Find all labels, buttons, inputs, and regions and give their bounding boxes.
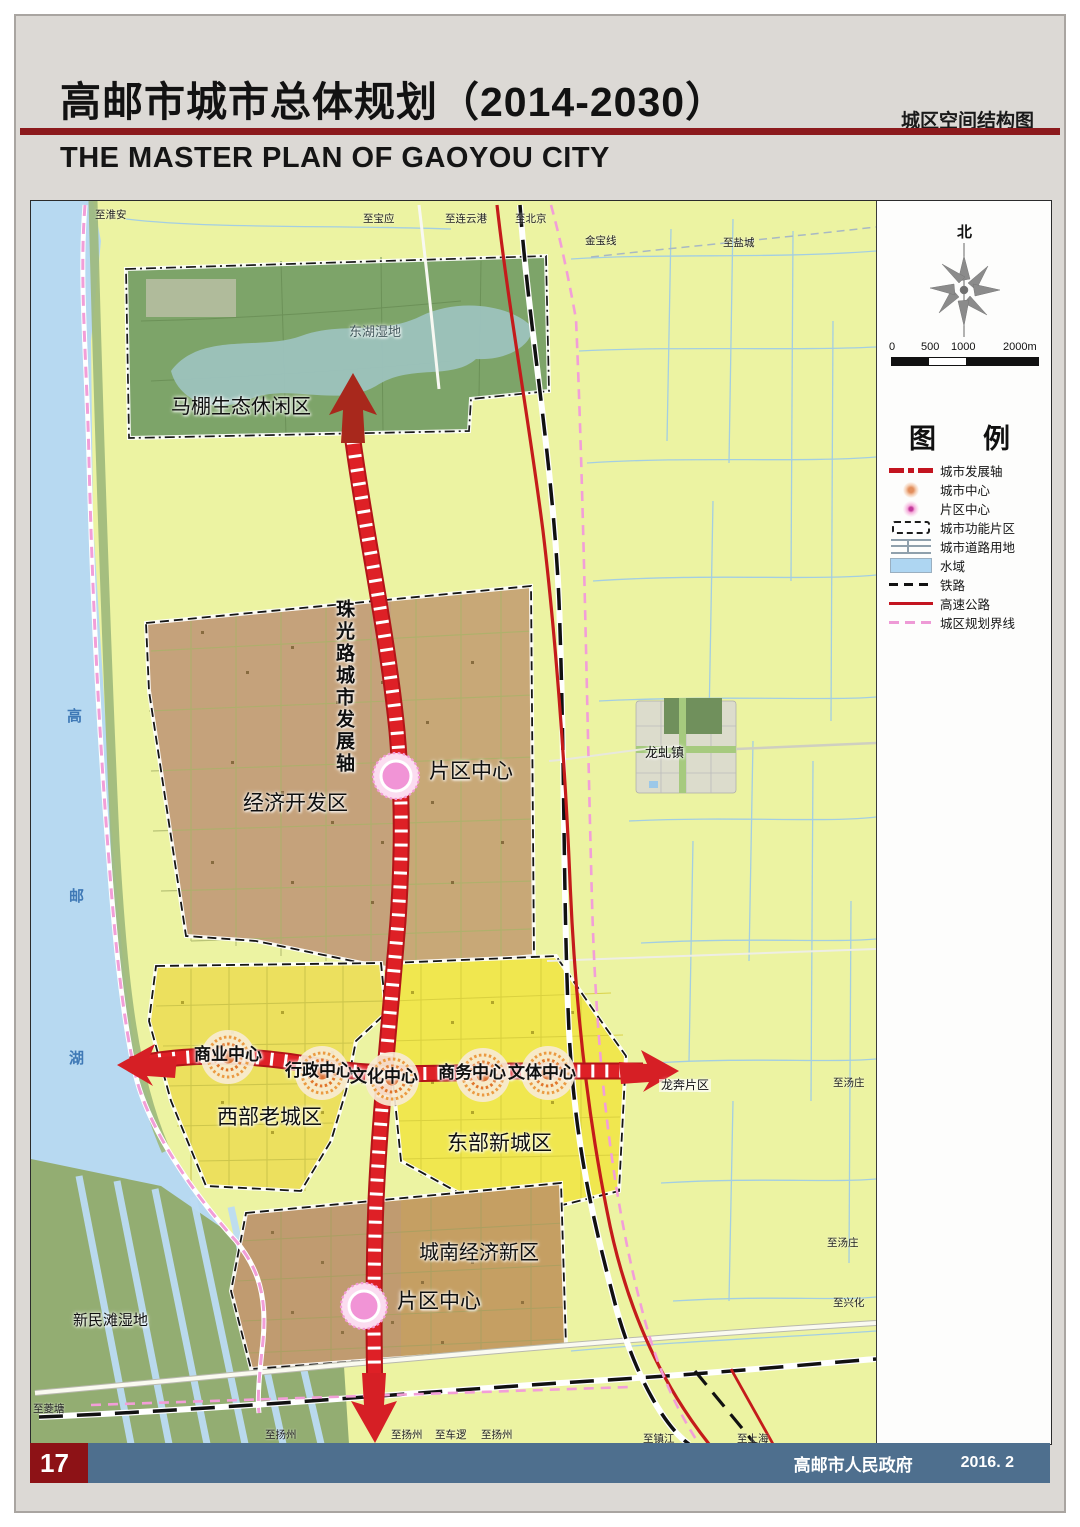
railway-swatch-icon	[889, 577, 933, 593]
legend-item-label: 片区中心	[940, 499, 990, 518]
map-label: 商业中心	[194, 1046, 262, 1064]
edge-label: 至汤庄	[827, 1235, 859, 1250]
boundary-swatch-icon	[889, 615, 933, 631]
footer-bar: 17 高邮市人民政府 2016. 2	[30, 1443, 1050, 1483]
map-label: 文化中心	[350, 1068, 418, 1086]
map-label: 马棚生态休闲区	[171, 397, 311, 418]
legend-title: 图 例	[877, 417, 1052, 456]
scale-tick: 500	[921, 341, 939, 353]
scale-numbers: 050010002000m	[891, 341, 1039, 355]
page-number: 17	[30, 1443, 88, 1483]
edge-label: 至菱塘	[33, 1401, 65, 1416]
scale-tick: 0	[889, 341, 895, 353]
legend-item-label: 铁路	[940, 575, 965, 594]
publisher-label: 高邮市人民政府	[794, 1451, 913, 1476]
map-canvas: 马棚生态休闲区东湖湿地经济开发区珠光路城市发展轴片区中心商业中心行政中心文化中心…	[31, 201, 876, 1444]
map-frame: 马棚生态休闲区东湖湿地经济开发区珠光路城市发展轴片区中心商业中心行政中心文化中心…	[30, 200, 1052, 1445]
map-label: 城南经济新区	[419, 1243, 539, 1264]
map-label: 湖	[69, 1051, 84, 1067]
compass-rose-icon	[917, 243, 1011, 337]
page-title: 高邮市城市总体规划（2014-2030）	[60, 68, 727, 128]
edge-label: 至车逻	[435, 1427, 467, 1442]
city-center-swatch-icon	[889, 482, 933, 498]
footer-strip: 高邮市人民政府 2016. 2	[88, 1443, 1050, 1483]
map-label: 新民滩湿地	[73, 1313, 148, 1329]
map-label: 行政中心	[285, 1062, 353, 1080]
map-label: 文体中心	[508, 1064, 576, 1082]
legend-item: 水域	[889, 556, 1049, 575]
legend-item-label: 水域	[940, 556, 965, 575]
legend-item-label: 城市发展轴	[940, 461, 1003, 480]
legend-list: 城市发展轴城市中心片区中心城市功能片区城市道路用地水域铁路高速公路城区规划界线	[889, 461, 1049, 632]
south-newzone	[231, 1183, 566, 1369]
scale-bar: 050010002000m	[891, 341, 1039, 366]
highway-swatch-icon	[889, 596, 933, 612]
edge-label: 至兴化	[833, 1295, 865, 1310]
road-land-swatch-icon	[889, 539, 933, 555]
scale-bar-graphic	[891, 357, 1039, 366]
edge-label: 至汤庄	[833, 1075, 865, 1090]
legend-item: 铁路	[889, 575, 1049, 594]
edge-label: 至扬州	[391, 1427, 423, 1442]
legend-item: 城市发展轴	[889, 461, 1049, 480]
legend-item: 城市道路用地	[889, 537, 1049, 556]
map-label: 高	[67, 709, 82, 725]
map-label: 经济开发区	[243, 793, 348, 815]
legend-item: 城市功能片区	[889, 518, 1049, 537]
legend-item: 片区中心	[889, 499, 1049, 518]
axis-swatch-icon	[889, 463, 933, 479]
map-sidebar: 北 050010002000m	[876, 201, 1052, 1444]
legend-item: 高速公路	[889, 594, 1049, 613]
scale-tick: 2000m	[1003, 341, 1037, 353]
map-label: 片区中心	[397, 1291, 481, 1313]
edge-label: 至北京	[515, 211, 547, 226]
map-label: 龙虬镇	[645, 746, 684, 760]
district-center-swatch-icon	[889, 501, 933, 517]
edge-label: 至淮安	[95, 207, 127, 222]
north-label: 北	[877, 221, 1052, 242]
legend-item-label: 城市道路用地	[940, 537, 1015, 556]
edge-label: 至扬州	[265, 1427, 297, 1442]
func-zone-swatch-icon	[889, 520, 933, 536]
header-rule	[20, 128, 1060, 135]
legend-item-label: 城区规划界线	[940, 613, 1015, 632]
map-label: 邮	[69, 889, 84, 905]
edge-label: 至连云港	[445, 211, 487, 226]
map-label: 片区中心	[429, 761, 513, 783]
map-label: 龙奔片区	[659, 1079, 711, 1092]
water-swatch-icon	[889, 558, 933, 574]
map-label: 商务中心	[438, 1064, 506, 1082]
legend-item: 城区规划界线	[889, 613, 1049, 632]
map-label: 珠光路城市发展轴	[333, 599, 353, 775]
legend-item-label: 城市中心	[940, 480, 990, 499]
edge-label: 至扬州	[481, 1427, 513, 1442]
edge-label: 至宝应	[363, 211, 395, 226]
legend-item-label: 城市功能片区	[940, 518, 1015, 537]
edge-label: 金宝线	[585, 233, 617, 248]
edge-label: 至盐城	[723, 235, 755, 250]
map-label: 东部新城区	[447, 1133, 552, 1155]
map-label: 东湖湿地	[349, 325, 401, 339]
legend-item-label: 高速公路	[940, 594, 990, 613]
map-label: 西部老城区	[217, 1107, 322, 1129]
scale-tick: 1000	[951, 341, 975, 353]
page-subtitle-en: THE MASTER PLAN OF GAOYOU CITY	[60, 142, 610, 175]
plan-sheet: 高邮市城市总体规划（2014-2030） 城区空间结构图 THE MASTER …	[14, 14, 1066, 1513]
date-label: 2016. 2	[961, 1454, 1014, 1472]
legend-item: 城市中心	[889, 480, 1049, 499]
